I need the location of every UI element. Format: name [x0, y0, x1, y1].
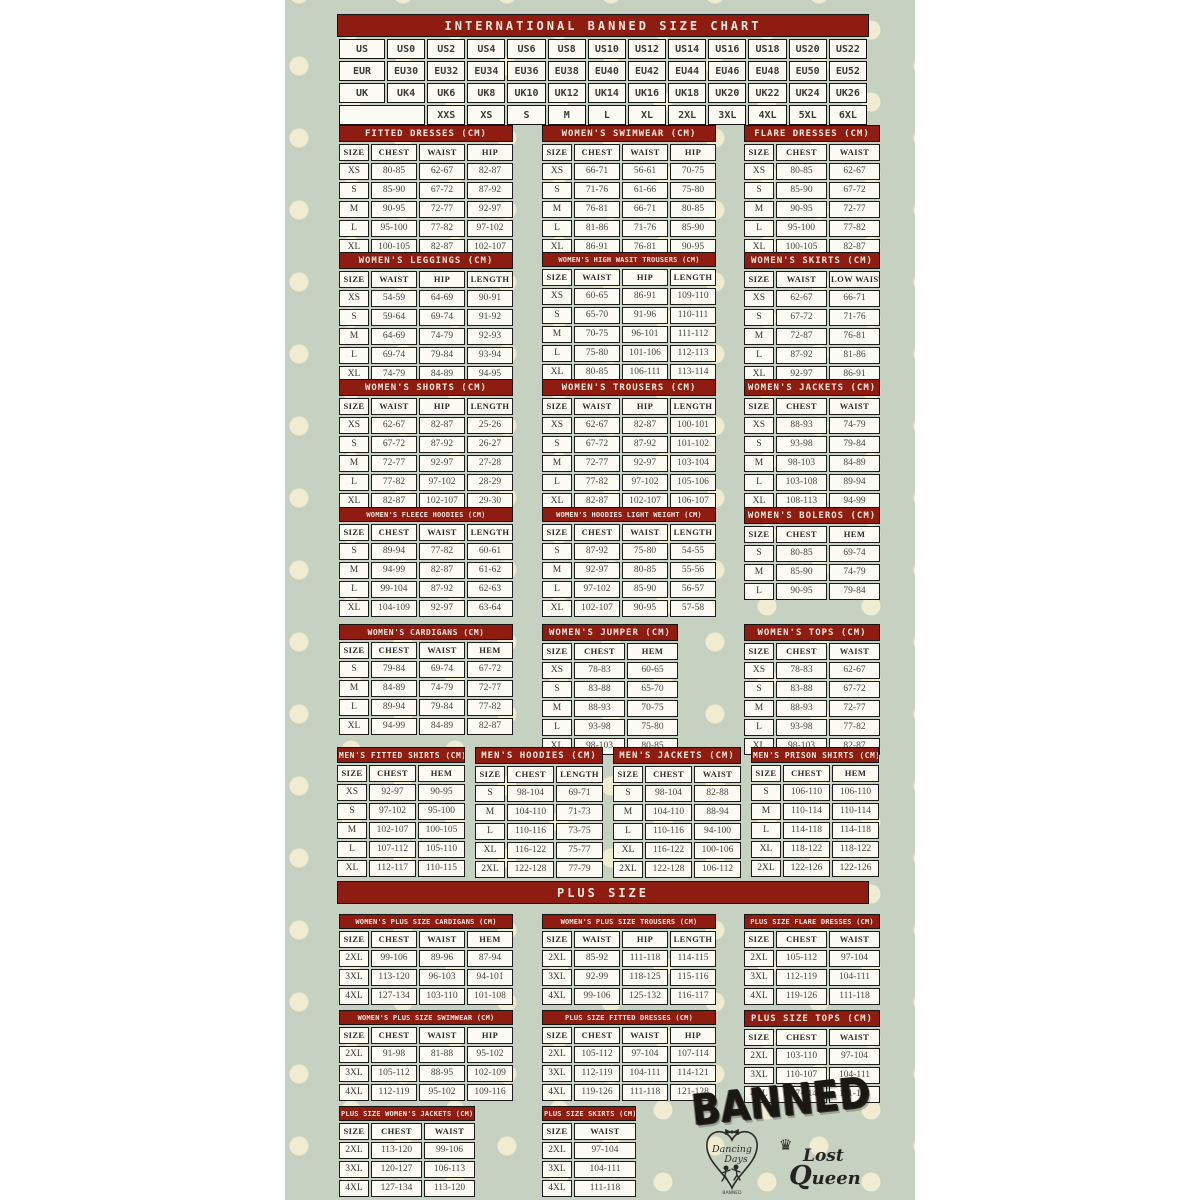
plus_tops-title: PLUS SIZE TOPS (CM) [744, 1010, 880, 1027]
header-row: SIZECHESTWAISTHIP [339, 144, 513, 161]
value-cell: 104-111 [622, 1065, 668, 1082]
column-header: LENGTH [467, 524, 513, 541]
size-label: L [613, 823, 643, 840]
mens_fitted_shirts-table: SIZECHESTHEMXS92-9790-95S97-10295-100M10… [335, 763, 467, 879]
size-label: M [744, 700, 774, 717]
table-row: S89-9477-8260-61 [339, 543, 513, 560]
column-header: CHEST [645, 766, 692, 783]
table-womens-boleros: WOMEN'S BOLEROS (CM)SIZECHESTHEMS80-8569… [742, 507, 882, 602]
value-cell: 64-69 [419, 290, 465, 307]
table-row: M70-7596-101111-112 [542, 326, 716, 343]
table-row: XS66-7156-6170-75 [542, 163, 716, 180]
table-row: L95-10077-8297-102 [339, 220, 513, 237]
intl-cell: EU34 [467, 61, 505, 81]
value-cell: 92-93 [467, 328, 513, 345]
value-cell: 96-101 [622, 326, 668, 343]
value-cell: 105-112 [371, 1065, 417, 1082]
womens_skirts-title: WOMEN'S SKIRTS (CM) [744, 252, 880, 269]
table-row: XS62-6782-8725-26 [339, 417, 513, 434]
value-cell: 94-99 [371, 562, 417, 579]
table-row: M90-9572-7792-97 [339, 201, 513, 218]
column-header: CHEST [776, 526, 827, 543]
value-cell: 110-115 [418, 860, 465, 877]
table-womens-trousers: WOMEN'S TROUSERS (CM)SIZEWAISTHIPLENGTHX… [540, 379, 718, 512]
value-cell: 87-94 [467, 950, 513, 967]
value-cell: 93-98 [574, 719, 625, 736]
value-cell: 112-117 [369, 860, 416, 877]
intl-cell: 4XL [748, 105, 786, 125]
value-cell: 84-89 [829, 455, 880, 472]
table-row: L110-11673-75 [475, 823, 603, 840]
table-row: L107-112105-110 [337, 841, 465, 858]
size-label: S [542, 681, 572, 698]
column-header: SIZE [744, 144, 774, 161]
value-cell: 79-84 [829, 436, 880, 453]
value-cell: 77-82 [574, 474, 620, 491]
plus-size-banner-title: PLUS SIZE [337, 881, 869, 904]
column-header: HIP [670, 1027, 716, 1044]
value-cell: 74-79 [419, 680, 465, 697]
value-cell: 105-110 [418, 841, 465, 858]
size-label: L [744, 220, 774, 237]
size-label: M [542, 455, 572, 472]
value-cell: 93-98 [776, 436, 827, 453]
value-cell: 66-71 [622, 201, 668, 218]
value-cell: 90-95 [776, 201, 827, 218]
value-cell: 97-102 [419, 474, 465, 491]
column-header: SIZE [542, 931, 572, 948]
column-header: LENGTH [467, 271, 513, 288]
table-row: L90-9579-84 [744, 583, 880, 600]
table-row: S67-7287-92101-102 [542, 436, 716, 453]
value-cell: 87-92 [622, 436, 668, 453]
intl-cell: US8 [548, 39, 586, 59]
table-plus-trousers: WOMEN'S PLUS SIZE TROUSERS (CM)SIZEWAIST… [540, 914, 718, 1007]
size-label: M [744, 455, 774, 472]
plus_trousers-title: WOMEN'S PLUS SIZE TROUSERS (CM) [542, 914, 716, 929]
column-header: SIZE [339, 931, 369, 948]
size-label: M [339, 455, 369, 472]
womens_cardigans-table: SIZECHESTWAISTHEMS79-8469-7467-72M84-897… [337, 640, 515, 737]
size-label: S [744, 436, 774, 453]
size-label: XS [744, 163, 774, 180]
value-cell: 28-29 [467, 474, 513, 491]
table-row: 2XL122-126122-126 [751, 860, 879, 877]
size-label: L [542, 719, 572, 736]
table-row: M72-7792-9727-28 [339, 455, 513, 472]
value-cell: 113-120 [371, 1142, 422, 1159]
table-row: M72-8776-81 [744, 328, 880, 345]
table-row: S80-8569-74 [744, 545, 880, 562]
column-header: CHEST [574, 1027, 620, 1044]
value-cell: 125-132 [622, 988, 668, 1005]
value-cell: 99-106 [424, 1142, 475, 1159]
value-cell: 104-110 [645, 804, 692, 821]
column-header: CHEST [783, 765, 830, 782]
intl-cell: US [339, 39, 385, 59]
column-header: WAIST [574, 269, 620, 286]
value-cell: 61-66 [622, 182, 668, 199]
value-cell: 103-110 [419, 988, 465, 1005]
value-cell: 62-67 [829, 163, 880, 180]
value-cell: 111-118 [622, 950, 668, 967]
size-label: S [339, 182, 369, 199]
plus_cardigans-table: SIZECHESTWAISTHEM2XL99-10689-9687-943XL1… [337, 929, 515, 1007]
table-womens-jackets: WOMEN'S JACKETS (CM)SIZECHESTWAISTXS88-9… [742, 379, 882, 512]
value-cell: 105-112 [776, 950, 827, 967]
value-cell: 99-104 [371, 581, 417, 598]
value-cell: 87-92 [776, 347, 827, 364]
table-row: L114-118114-118 [751, 822, 879, 839]
value-cell: 85-90 [776, 564, 827, 581]
plus_swimwear-table: SIZECHESTWAISTHIP2XL91-9881-8895-1023XL1… [337, 1025, 515, 1103]
value-cell: 56-61 [622, 163, 668, 180]
womens_tops-table: SIZECHESTWAISTXS78-8362-67S83-8867-72M88… [742, 641, 882, 757]
header-row: SIZECHESTHEM [542, 643, 678, 660]
table-plus-skirts: PLUS SIZE SKIRTS (CM)SIZEWAIST2XL97-1043… [540, 1106, 638, 1199]
column-header: HEM [832, 765, 879, 782]
size-label: M [339, 680, 369, 697]
size-label: XL [339, 718, 369, 735]
column-header: CHEST [371, 144, 417, 161]
value-cell: 101-108 [467, 988, 513, 1005]
table-row: XL116-12275-77 [475, 842, 603, 859]
mens_fitted_shirts-title: MEN'S FITTED SHIRTS (CM) [337, 747, 465, 763]
value-cell: 106-113 [424, 1161, 475, 1178]
table-row: XS80-8562-67 [744, 163, 880, 180]
value-cell: 55-56 [670, 562, 716, 579]
column-header: CHEST [776, 398, 827, 415]
intl-cell: XL [628, 105, 666, 125]
column-header: SIZE [542, 1123, 572, 1140]
value-cell: 100-105 [418, 822, 465, 839]
table-row: M92-9780-8555-56 [542, 562, 716, 579]
polka-background: INTERNATIONAL BANNED SIZE CHART USUS0US2… [285, 0, 915, 1200]
table-row: 3XL104-111 [542, 1161, 636, 1178]
column-header: WAIST [622, 524, 668, 541]
value-cell: 92-97 [574, 562, 620, 579]
table-high-waist-trousers: WOMEN'S HIGH WASIT TROUSERS (CM)SIZEWAIS… [540, 252, 718, 383]
value-cell: 70-75 [670, 163, 716, 180]
hoodies_light-table: SIZECHESTWAISTLENGTHS87-9275-8054-55M92-… [540, 522, 718, 619]
value-cell: 115-116 [670, 969, 716, 986]
value-cell: 87-92 [467, 182, 513, 199]
womens_jackets-title: WOMEN'S JACKETS (CM) [744, 379, 880, 396]
size-label: M [613, 804, 643, 821]
table-fitted-dresses: FITTED DRESSES (CM)SIZECHESTWAISTHIPXS80… [337, 125, 515, 258]
womens_leggings-title: WOMEN'S LEGGINGS (CM) [339, 252, 513, 269]
plus_jackets-title: PLUS SIZE WOMEN'S JACKETS (CM) [339, 1106, 475, 1121]
intl-cell: US2 [427, 39, 465, 59]
column-header: WAIST [371, 398, 417, 415]
value-cell: 77-82 [829, 220, 880, 237]
value-cell: 97-104 [829, 950, 880, 967]
column-header: WAIST [776, 271, 827, 288]
intl-cell: US18 [748, 39, 786, 59]
value-cell: 26-27 [467, 436, 513, 453]
column-header: WAIST [574, 931, 620, 948]
value-cell: 86-91 [622, 288, 668, 305]
intl-cell: L [588, 105, 626, 125]
intl-cell: S [507, 105, 545, 125]
value-cell: 103-110 [776, 1048, 827, 1065]
value-cell: 105-106 [670, 474, 716, 491]
value-cell: 72-77 [829, 700, 880, 717]
header-row: SIZECHESTHEM [751, 765, 879, 782]
value-cell: 97-104 [829, 1048, 880, 1065]
value-cell: 27-28 [467, 455, 513, 472]
value-cell: 85-90 [622, 581, 668, 598]
value-cell: 62-67 [776, 290, 827, 307]
value-cell: 127-134 [371, 1180, 422, 1197]
size-label: S [613, 785, 643, 802]
intl-cell: US22 [829, 39, 867, 59]
table-plus-swimwear: WOMEN'S PLUS SIZE SWIMWEAR (CM)SIZECHEST… [337, 1010, 515, 1103]
table-row: S71-7661-6675-80 [542, 182, 716, 199]
intl-cell: UK [339, 83, 385, 103]
table-row: XL104-10992-9763-64 [339, 600, 513, 617]
column-header: SIZE [542, 269, 572, 286]
column-header: CHEST [369, 765, 416, 782]
value-cell: 77-82 [467, 699, 513, 716]
intl-cell: EU46 [708, 61, 746, 81]
column-header: WAIST [829, 144, 880, 161]
intl-row: USUS0US2US4US6US8US10US12US14US16US18US2… [339, 39, 867, 59]
value-cell: 118-122 [832, 841, 879, 858]
column-header: CHEST [574, 144, 620, 161]
table-row: 2XL91-9881-8895-102 [339, 1046, 513, 1063]
mens_prison_shirts-table: SIZECHESTHEMS106-110106-110M110-114110-1… [749, 763, 881, 879]
intl-cell: UK26 [829, 83, 867, 103]
table-row: S97-10295-100 [337, 803, 465, 820]
table-row: XS78-8362-67 [744, 662, 880, 679]
size-label: 4XL [339, 988, 369, 1005]
high_waist_trousers-title: WOMEN'S HIGH WASIT TROUSERS (CM) [542, 252, 716, 267]
value-cell: 94-100 [694, 823, 741, 840]
column-header: SIZE [339, 1123, 369, 1140]
column-header: WAIST [694, 766, 741, 783]
intl-cell: M [548, 105, 586, 125]
value-cell: 88-94 [694, 804, 741, 821]
column-header: CHEST [507, 766, 554, 783]
value-cell: 69-74 [829, 545, 880, 562]
value-cell: 92-97 [622, 455, 668, 472]
size-label: M [542, 326, 572, 343]
value-cell: 89-94 [371, 699, 417, 716]
value-cell: 109-110 [670, 288, 716, 305]
column-header: SIZE [744, 271, 774, 288]
size-label: XS [542, 417, 572, 434]
womens_boleros-title: WOMEN'S BOLEROS (CM) [744, 507, 880, 524]
column-header: SIZE [339, 398, 369, 415]
header-row: SIZECHESTWAISTHEM [339, 642, 513, 659]
size-label: L [744, 347, 774, 364]
value-cell: 106-110 [783, 784, 830, 801]
intl-cell: UK22 [748, 83, 786, 103]
table-row: M98-10384-89 [744, 455, 880, 472]
intl-cell: US12 [628, 39, 666, 59]
table-row: XS80-8562-6782-87 [339, 163, 513, 180]
value-cell: 70-75 [574, 326, 620, 343]
column-header: CHEST [776, 931, 827, 948]
column-header: HIP [467, 1027, 513, 1044]
value-cell: 95-100 [418, 803, 465, 820]
value-cell: 97-104 [574, 1142, 636, 1159]
value-cell: 111-112 [670, 326, 716, 343]
value-cell: 60-65 [574, 288, 620, 305]
header-row: SIZECHESTHEM [337, 765, 465, 782]
value-cell: 79-84 [419, 347, 465, 364]
value-cell: 112-113 [670, 345, 716, 362]
value-cell: 91-98 [371, 1046, 417, 1063]
intl-cell: 3XL [708, 105, 746, 125]
value-cell: 112-119 [776, 969, 827, 986]
column-header: SIZE [542, 144, 572, 161]
table-row: 4XL127-134103-110101-108 [339, 988, 513, 1005]
value-cell: 112-119 [371, 1084, 417, 1101]
table-row: 4XL111-118 [542, 1180, 636, 1197]
value-cell: 95-102 [467, 1046, 513, 1063]
table-mens-hoodies: MEN'S HOODIES (CM)SIZECHESTLENGTHS98-104… [473, 747, 605, 880]
value-cell: 79-84 [419, 699, 465, 716]
value-cell: 103-108 [776, 474, 827, 491]
size-label: 3XL [542, 1065, 572, 1082]
table-row: M102-107100-105 [337, 822, 465, 839]
size-label: XS [337, 784, 367, 801]
international-chart-title: INTERNATIONAL BANNED SIZE CHART [337, 14, 869, 37]
column-header: HIP [622, 398, 668, 415]
size-label: S [339, 543, 369, 560]
table-row: XS88-9374-79 [744, 417, 880, 434]
plus-size-banner: PLUS SIZE [337, 881, 869, 904]
table-row: L75-80101-106112-113 [542, 345, 716, 362]
value-cell: 67-72 [829, 182, 880, 199]
size-label: XS [744, 662, 774, 679]
value-cell: 75-77 [556, 842, 603, 859]
value-cell: 119-126 [776, 988, 827, 1005]
value-cell: 72-77 [829, 201, 880, 218]
hoodies_light-title: WOMEN'S HOODIES LIGHT WEIGHT (CM) [542, 507, 716, 522]
column-header: SIZE [542, 643, 572, 660]
fitted_dresses-title: FITTED DRESSES (CM) [339, 125, 513, 142]
intl-cell: US4 [467, 39, 505, 59]
table-row: S65-7091-96110-111 [542, 307, 716, 324]
value-cell: 87-92 [419, 436, 465, 453]
column-header: WAIST [574, 398, 620, 415]
table-row: S83-8865-70 [542, 681, 678, 698]
intl-cell: US14 [668, 39, 706, 59]
size-label: 2XL [542, 1142, 572, 1159]
intl-row: EUREU30EU32EU34EU36EU38EU40EU42EU44EU46E… [339, 61, 867, 81]
size-label: L [542, 474, 572, 491]
value-cell: 84-89 [371, 680, 417, 697]
value-cell: 82-87 [622, 417, 668, 434]
table-row: S79-8469-7467-72 [339, 661, 513, 678]
value-cell: 80-85 [776, 163, 827, 180]
column-header: WAIST [829, 1029, 880, 1046]
size-label: M [542, 700, 572, 717]
value-cell: 66-71 [829, 290, 880, 307]
value-cell: 80-85 [371, 163, 417, 180]
value-cell: 95-100 [776, 220, 827, 237]
value-cell: 91-96 [622, 307, 668, 324]
value-cell: 61-62 [467, 562, 513, 579]
size-label: XL [337, 860, 367, 877]
value-cell: 95-102 [419, 1084, 465, 1101]
value-cell: 114-118 [832, 822, 879, 839]
table-row: M88-9370-75 [542, 700, 678, 717]
table-row: 3XL112-119104-111 [744, 969, 880, 986]
table-row: 3XL120-127106-113 [339, 1161, 475, 1178]
value-cell: 96-103 [419, 969, 465, 986]
header-row: SIZECHESTWAISTLENGTH [339, 524, 513, 541]
column-header: SIZE [744, 1029, 774, 1046]
value-cell: 116-122 [507, 842, 554, 859]
table-row: L77-8297-10228-29 [339, 474, 513, 491]
table-row: S106-110106-110 [751, 784, 879, 801]
header-row: SIZECHESTWAIST [744, 1029, 880, 1046]
value-cell: 63-64 [467, 600, 513, 617]
column-header: LENGTH [467, 398, 513, 415]
size-label: 3XL [339, 969, 369, 986]
intl-cell: UK16 [628, 83, 666, 103]
value-cell: 60-65 [627, 662, 678, 679]
value-cell: 67-72 [829, 681, 880, 698]
table-mens-prison-shirts: MEN'S PRISON SHIRTS (CM)SIZECHESTHEMS106… [749, 747, 881, 879]
value-cell: 92-99 [574, 969, 620, 986]
table-row: L99-10487-9262-63 [339, 581, 513, 598]
size-label: 3XL [542, 1161, 572, 1178]
value-cell: 122-126 [783, 860, 830, 877]
table-row: XS92-9790-95 [337, 784, 465, 801]
table-mens-fitted-shirts: MEN'S FITTED SHIRTS (CM)SIZECHESTHEMXS92… [335, 747, 467, 879]
value-cell: 87-92 [419, 581, 465, 598]
size-label: S [542, 182, 572, 199]
value-cell: 99-106 [574, 988, 620, 1005]
table-row: M88-9372-77 [744, 700, 880, 717]
column-header: WAIST [829, 643, 880, 660]
value-cell: 79-84 [829, 583, 880, 600]
column-header: SIZE [744, 526, 774, 543]
table-womens-leggings: WOMEN'S LEGGINGS (CM)SIZEWAISTHIPLENGTHX… [337, 252, 515, 385]
column-header: CHEST [776, 144, 827, 161]
size-label: 2XL [613, 861, 643, 878]
size-label: XS [542, 662, 572, 679]
size-label: L [542, 220, 572, 237]
intl-cell: UK14 [588, 83, 626, 103]
size-label: 4XL [542, 1180, 572, 1197]
value-cell: 69-71 [556, 785, 603, 802]
dancing-days-line2: Days [723, 1154, 748, 1165]
table-row: L110-11694-100 [613, 823, 741, 840]
size-label: M [339, 562, 369, 579]
size-label: L [339, 581, 369, 598]
table-row: XL94-9984-8982-87 [339, 718, 513, 735]
value-cell: 88-93 [776, 417, 827, 434]
table-row: XS62-6766-71 [744, 290, 880, 307]
value-cell: 83-88 [776, 681, 827, 698]
table-row: 2XL105-11297-104107-114 [542, 1046, 716, 1063]
flare_dresses-table: SIZECHESTWAISTXS80-8562-67S85-9067-72M90… [742, 142, 882, 258]
column-header: WAIST [424, 1123, 475, 1140]
column-header: HIP [419, 271, 465, 288]
table-row: XL102-10790-9557-58 [542, 600, 716, 617]
value-cell: 79-84 [371, 661, 417, 678]
header-row: SIZECHESTWAIST [613, 766, 741, 783]
international-size-chart: INTERNATIONAL BANNED SIZE CHART USUS0US2… [337, 14, 869, 127]
table-row: S85-9067-7287-92 [339, 182, 513, 199]
value-cell: 72-77 [419, 201, 465, 218]
